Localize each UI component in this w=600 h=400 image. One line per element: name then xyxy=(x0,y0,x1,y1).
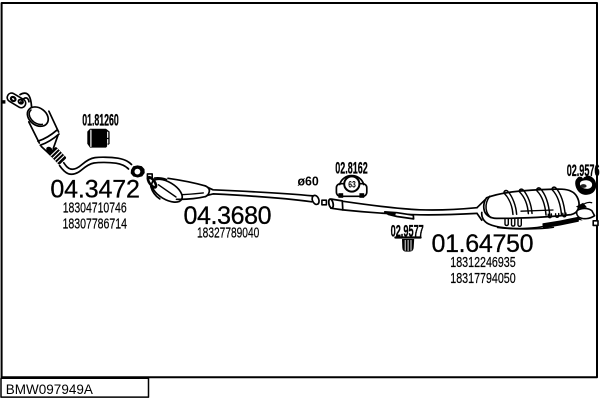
svg-text:18327789040: 18327789040 xyxy=(197,225,259,241)
svg-text:18307786714: 18307786714 xyxy=(63,216,128,232)
svg-text:BMW097949A: BMW097949A xyxy=(6,382,93,397)
svg-text:01.81260: 01.81260 xyxy=(82,112,119,130)
svg-text:01.64750: 01.64750 xyxy=(432,230,534,258)
svg-text:02.8162: 02.8162 xyxy=(335,160,367,178)
svg-text:18317794050: 18317794050 xyxy=(450,271,515,287)
svg-text:02.9577: 02.9577 xyxy=(391,222,424,240)
svg-text:63: 63 xyxy=(348,179,356,190)
svg-text:02.9576: 02.9576 xyxy=(567,162,600,180)
svg-text:18312246935: 18312246935 xyxy=(450,255,515,271)
svg-text:ø60: ø60 xyxy=(298,174,319,188)
svg-text:04.3472: 04.3472 xyxy=(50,175,139,203)
svg-text:18304710746: 18304710746 xyxy=(63,200,127,216)
